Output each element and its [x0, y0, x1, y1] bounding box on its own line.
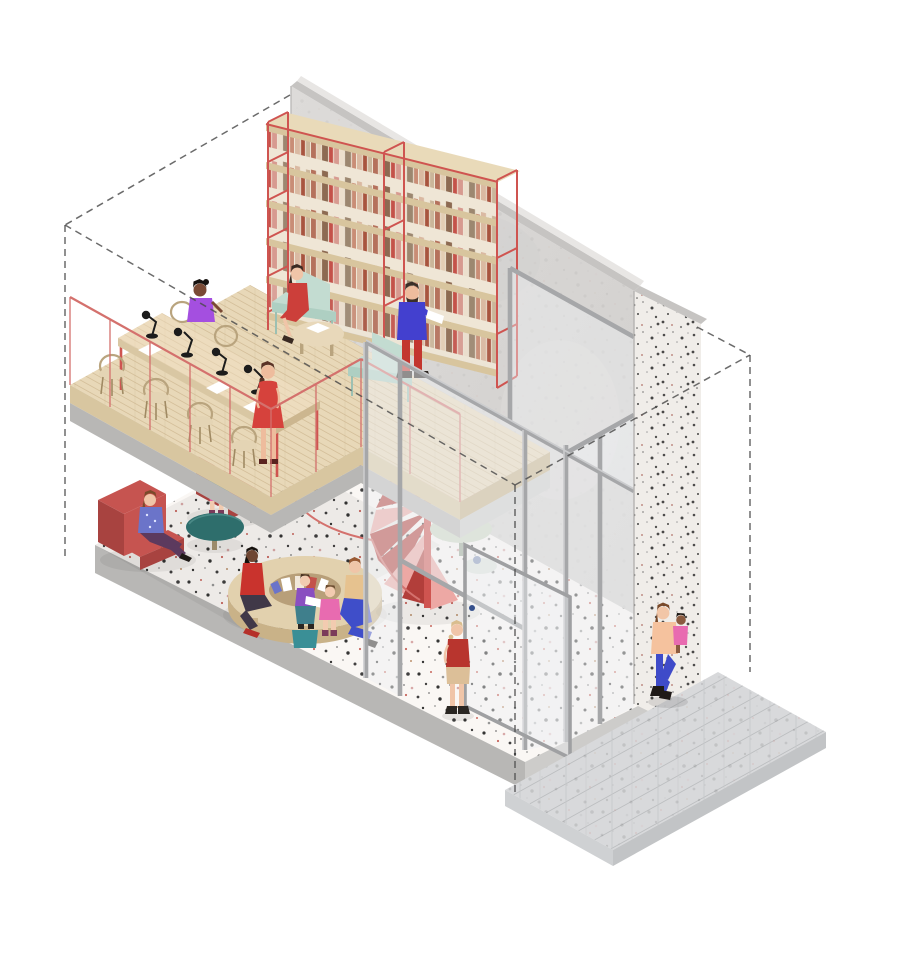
door-handle — [469, 605, 475, 611]
axonometric-cutaway-illustration — [0, 0, 900, 960]
illustration-canvas: Axonometric cutaway illustration of a tw… — [0, 0, 900, 960]
teal-side-table — [186, 513, 244, 553]
